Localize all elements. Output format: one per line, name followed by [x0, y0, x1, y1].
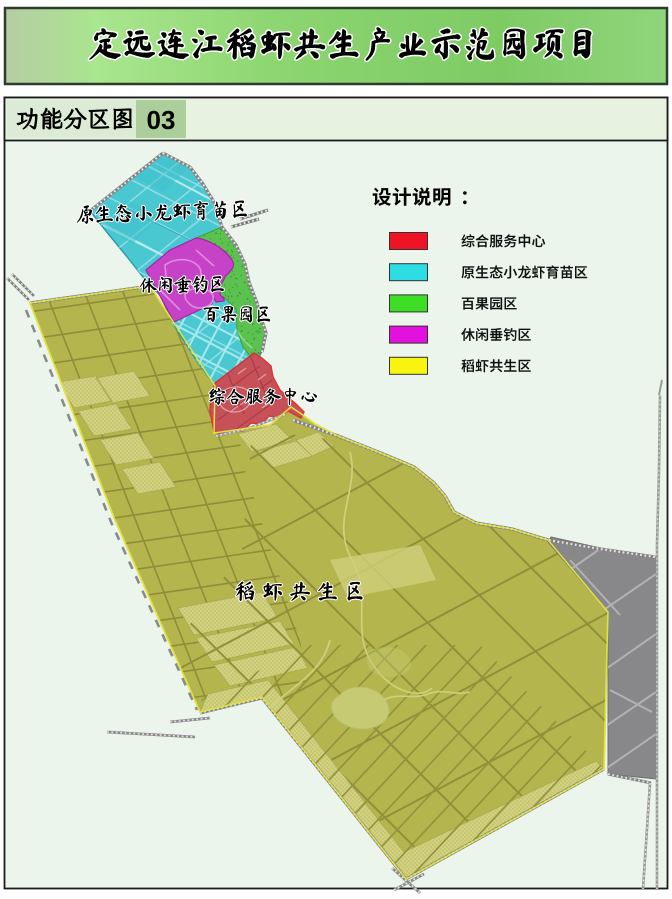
svg-text:03: 03 [147, 105, 176, 135]
